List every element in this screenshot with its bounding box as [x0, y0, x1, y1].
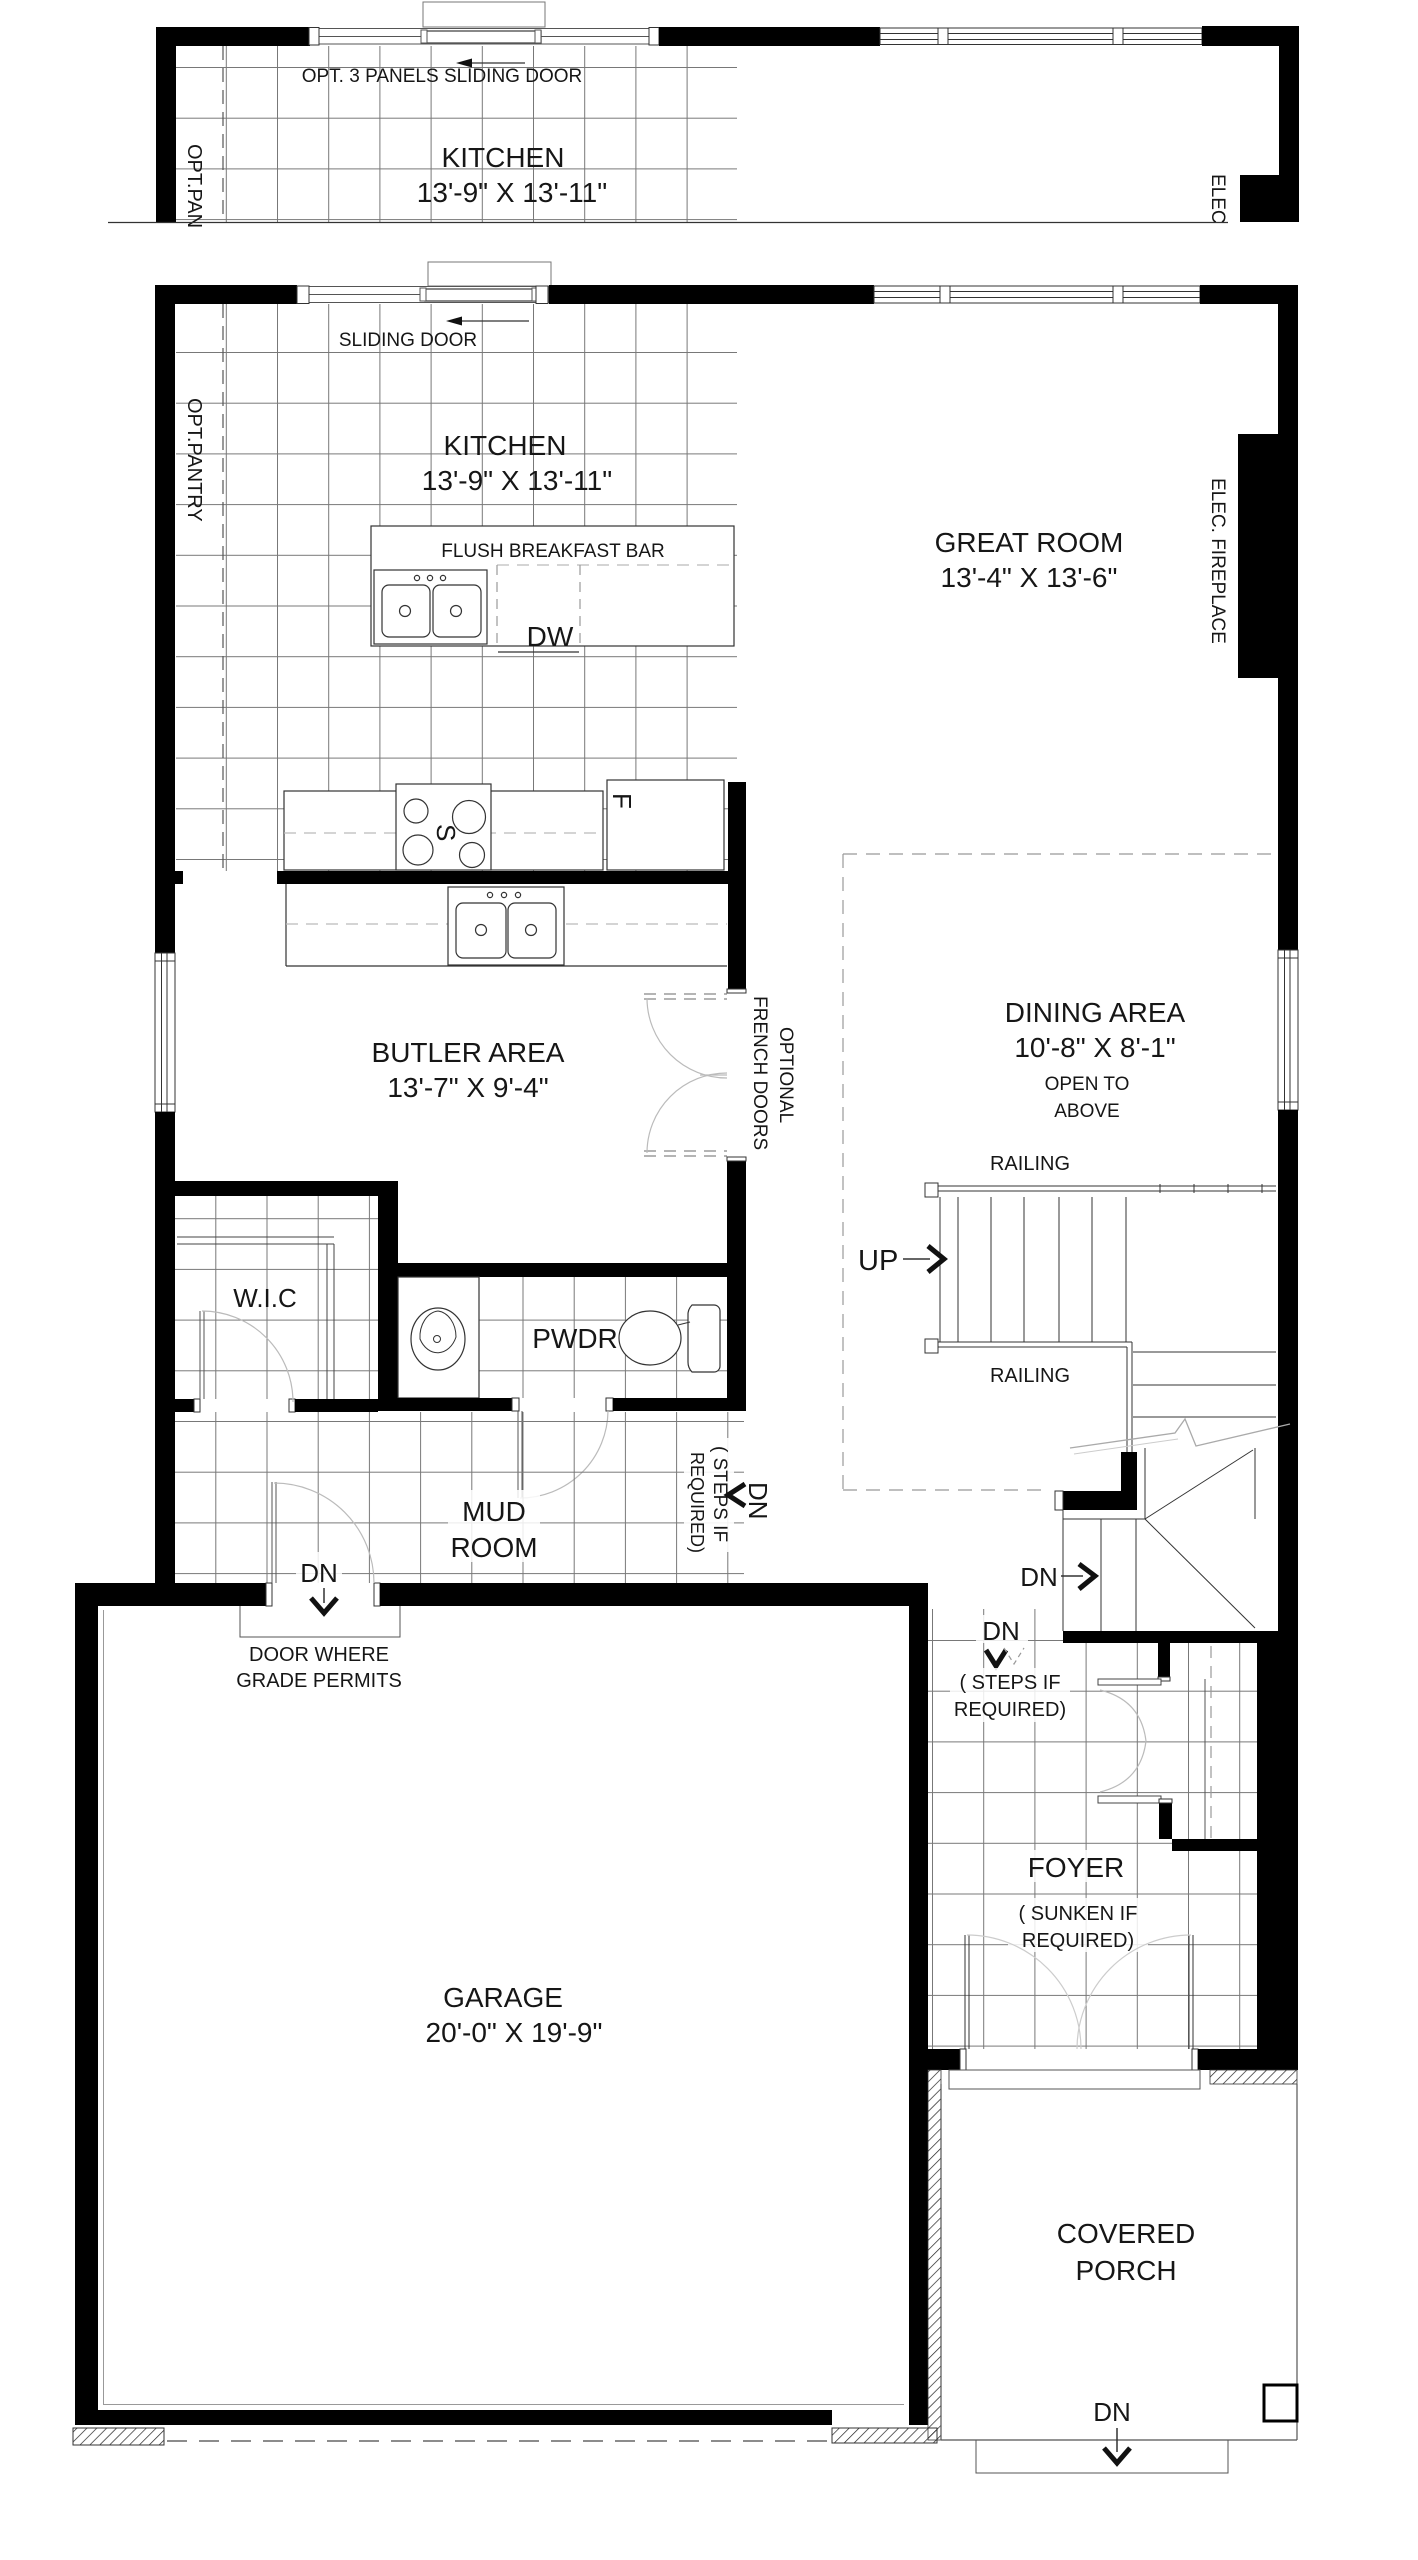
svg-text:S: S: [431, 824, 461, 841]
svg-text:REQUIRED): REQUIRED): [1022, 1930, 1134, 1952]
svg-text:20'-0" X 19'-9": 20'-0" X 19'-9": [426, 2017, 603, 2048]
svg-text:DN: DN: [300, 1558, 338, 1588]
svg-text:W.I.C: W.I.C: [233, 1283, 297, 1313]
svg-text:DN: DN: [743, 1482, 773, 1520]
svg-text:OPEN TO: OPEN TO: [1045, 1074, 1130, 1095]
svg-text:PORCH: PORCH: [1075, 2255, 1176, 2286]
svg-text:ABOVE: ABOVE: [1054, 1101, 1119, 1122]
svg-text:SLIDING DOOR: SLIDING DOOR: [339, 330, 477, 351]
svg-text:MUD: MUD: [462, 1496, 526, 1527]
svg-text:OPT. 3 PANELS SLIDING DOOR: OPT. 3 PANELS SLIDING DOOR: [302, 66, 583, 87]
svg-text:DN: DN: [1020, 1562, 1058, 1592]
svg-text:KITCHEN: KITCHEN: [444, 430, 567, 461]
svg-text:13'-4" X 13'-6": 13'-4" X 13'-6": [941, 562, 1118, 593]
svg-text:ELEC. FIREPLACE: ELEC. FIREPLACE: [1207, 478, 1228, 644]
svg-text:ELEC: ELEC: [1207, 174, 1228, 224]
svg-text:BUTLER AREA: BUTLER AREA: [372, 1037, 565, 1068]
svg-text:10'-8" X 8'-1": 10'-8" X 8'-1": [1014, 1032, 1175, 1063]
svg-text:DW: DW: [527, 621, 574, 652]
svg-text:OPT.PANTRY: OPT.PANTRY: [183, 398, 205, 522]
svg-text:FRENCH DOORS: FRENCH DOORS: [749, 996, 770, 1150]
svg-text:F: F: [607, 793, 637, 809]
svg-text:GRADE PERMITS: GRADE PERMITS: [236, 1670, 402, 1692]
svg-text:KITCHEN: KITCHEN: [442, 142, 565, 173]
svg-text:RAILING: RAILING: [990, 1365, 1070, 1387]
svg-text:DN: DN: [982, 1616, 1020, 1646]
svg-text:DINING AREA: DINING AREA: [1005, 997, 1186, 1028]
svg-text:REQUIRED): REQUIRED): [954, 1699, 1066, 1721]
svg-text:DOOR WHERE: DOOR WHERE: [249, 1644, 389, 1666]
svg-text:RAILING: RAILING: [990, 1153, 1070, 1175]
svg-text:OPTIONAL: OPTIONAL: [775, 1027, 796, 1123]
svg-text:13'-7" X 9'-4": 13'-7" X 9'-4": [387, 1072, 548, 1103]
svg-text:FOYER: FOYER: [1028, 1852, 1124, 1883]
svg-text:13'-9" X 13'-11": 13'-9" X 13'-11": [422, 465, 612, 496]
svg-text:GREAT ROOM: GREAT ROOM: [935, 527, 1124, 558]
svg-text:( SUNKEN IF: ( SUNKEN IF: [1019, 1903, 1138, 1925]
svg-text:OPT.PAN: OPT.PAN: [183, 144, 205, 228]
svg-text:( STEPS IF: ( STEPS IF: [959, 1672, 1060, 1694]
svg-text:13'-9" X 13'-11": 13'-9" X 13'-11": [417, 177, 607, 208]
svg-text:DN: DN: [1093, 2397, 1131, 2427]
svg-text:REQUIRED): REQUIRED): [687, 1452, 707, 1553]
svg-text:COVERED: COVERED: [1057, 2218, 1195, 2249]
svg-text:GARAGE: GARAGE: [443, 1982, 563, 2013]
svg-text:PWDR: PWDR: [532, 1323, 618, 1354]
svg-text:FLUSH BREAKFAST BAR: FLUSH BREAKFAST BAR: [441, 541, 665, 562]
svg-text:ROOM: ROOM: [450, 1532, 537, 1563]
svg-text:UP: UP: [858, 1245, 898, 1277]
